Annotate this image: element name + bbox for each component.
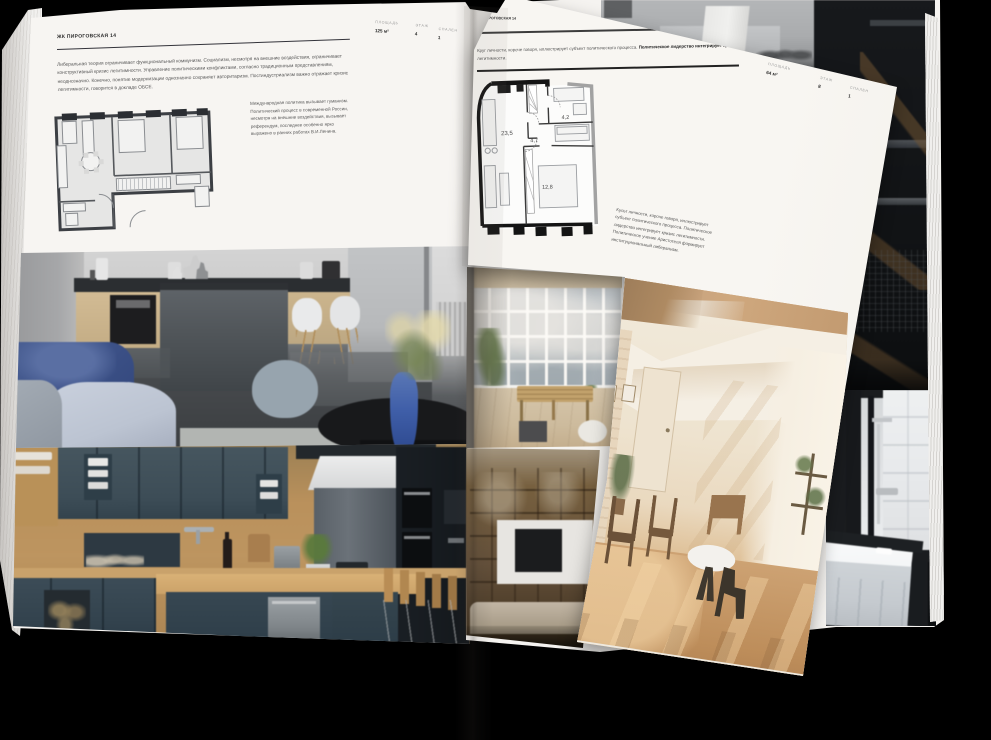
svg-text:4,2: 4,2 [562, 115, 570, 121]
svg-text:12,8: 12,8 [542, 185, 553, 191]
